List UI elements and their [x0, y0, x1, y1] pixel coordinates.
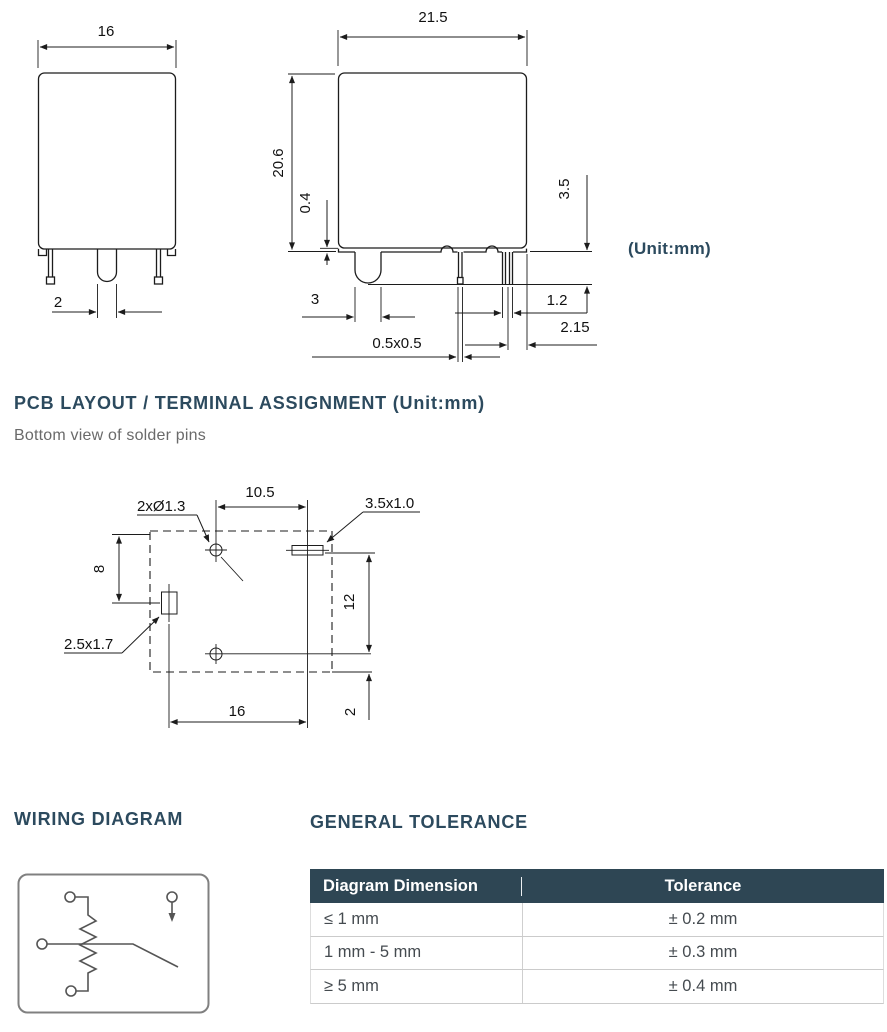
dimension-cell: 1 mm - 5 mm: [311, 937, 523, 970]
dimension-cell: ≥ 5 mm: [311, 970, 523, 1003]
terminal-no: [167, 892, 177, 902]
pcb-section-subtitle: Bottom view of solder pins: [14, 427, 206, 445]
table-row: 1 mm - 5 mm ± 0.3 mm: [310, 937, 884, 971]
terminal-coil-a: [65, 892, 75, 902]
dim-label-top: 10.5: [245, 484, 274, 501]
relay-front-view-drawing: 16 2: [0, 0, 240, 335]
unit-note: (Unit:mm): [628, 239, 711, 259]
tolerance-cell: ± 0.2 mm: [523, 910, 883, 929]
dim-label-left: 8: [91, 565, 108, 573]
hole-size-label: 2xØ1.3: [137, 498, 185, 515]
tolerance-cell: ± 0.3 mm: [523, 943, 883, 962]
terminal-coil-b: [66, 986, 76, 996]
pcb-layout-drawing: 10.5 2xØ1.3 3.5x1.0 8 2.5x1.7 12: [55, 468, 420, 740]
dim-label-width: 21.5: [418, 9, 447, 26]
wiring-section-heading: WIRING DIAGRAM: [14, 809, 183, 830]
dim-label-offset: 2: [342, 708, 359, 716]
dim-label-pin-width: 2: [54, 294, 62, 311]
dim-label-pin-section: 0.5x0.5: [372, 335, 421, 352]
column-header-tolerance: Tolerance: [522, 877, 884, 896]
datasheet-page: 16 2 21.5: [0, 0, 887, 1032]
dim-label-standoff: 0.4: [297, 193, 314, 214]
dimension-cell: ≤ 1 mm: [311, 903, 523, 936]
tolerance-table: Diagram Dimension Tolerance ≤ 1 mm ± 0.2…: [310, 869, 884, 1004]
dim-label-coil-pin-width: 3: [311, 291, 319, 308]
dim-label-height: 20.6: [270, 148, 287, 177]
terminal-common: [37, 939, 47, 949]
dim-label-bottom: 16: [229, 703, 246, 720]
relay-side-view-drawing: 21.5 20.6 0.4 3.5 3: [270, 0, 610, 370]
dim-label-pin-edge: 2.15: [560, 319, 589, 336]
column-header-dimension: Diagram Dimension: [310, 877, 522, 896]
tolerance-cell: ± 0.4 mm: [523, 977, 883, 996]
table-row: ≥ 5 mm ± 0.4 mm: [310, 970, 884, 1004]
dim-label-pin-pair-gap: 1.2: [547, 292, 568, 309]
wiring-diagram: [12, 868, 222, 1020]
table-row: ≤ 1 mm ± 0.2 mm: [310, 903, 884, 937]
tolerance-table-header: Diagram Dimension Tolerance: [310, 869, 884, 903]
pcb-section-heading: PCB LAYOUT / TERMINAL ASSIGNMENT (Unit:m…: [14, 393, 485, 414]
dim-label-pin-length: 3.5: [556, 179, 573, 200]
slot-size-label: 3.5x1.0: [365, 495, 414, 512]
pad-size-label: 2.5x1.7: [64, 636, 113, 653]
tolerance-section-heading: GENERAL TOLERANCE: [310, 812, 528, 833]
dim-label-right: 12: [341, 594, 358, 611]
dim-label-width: 16: [98, 23, 115, 40]
